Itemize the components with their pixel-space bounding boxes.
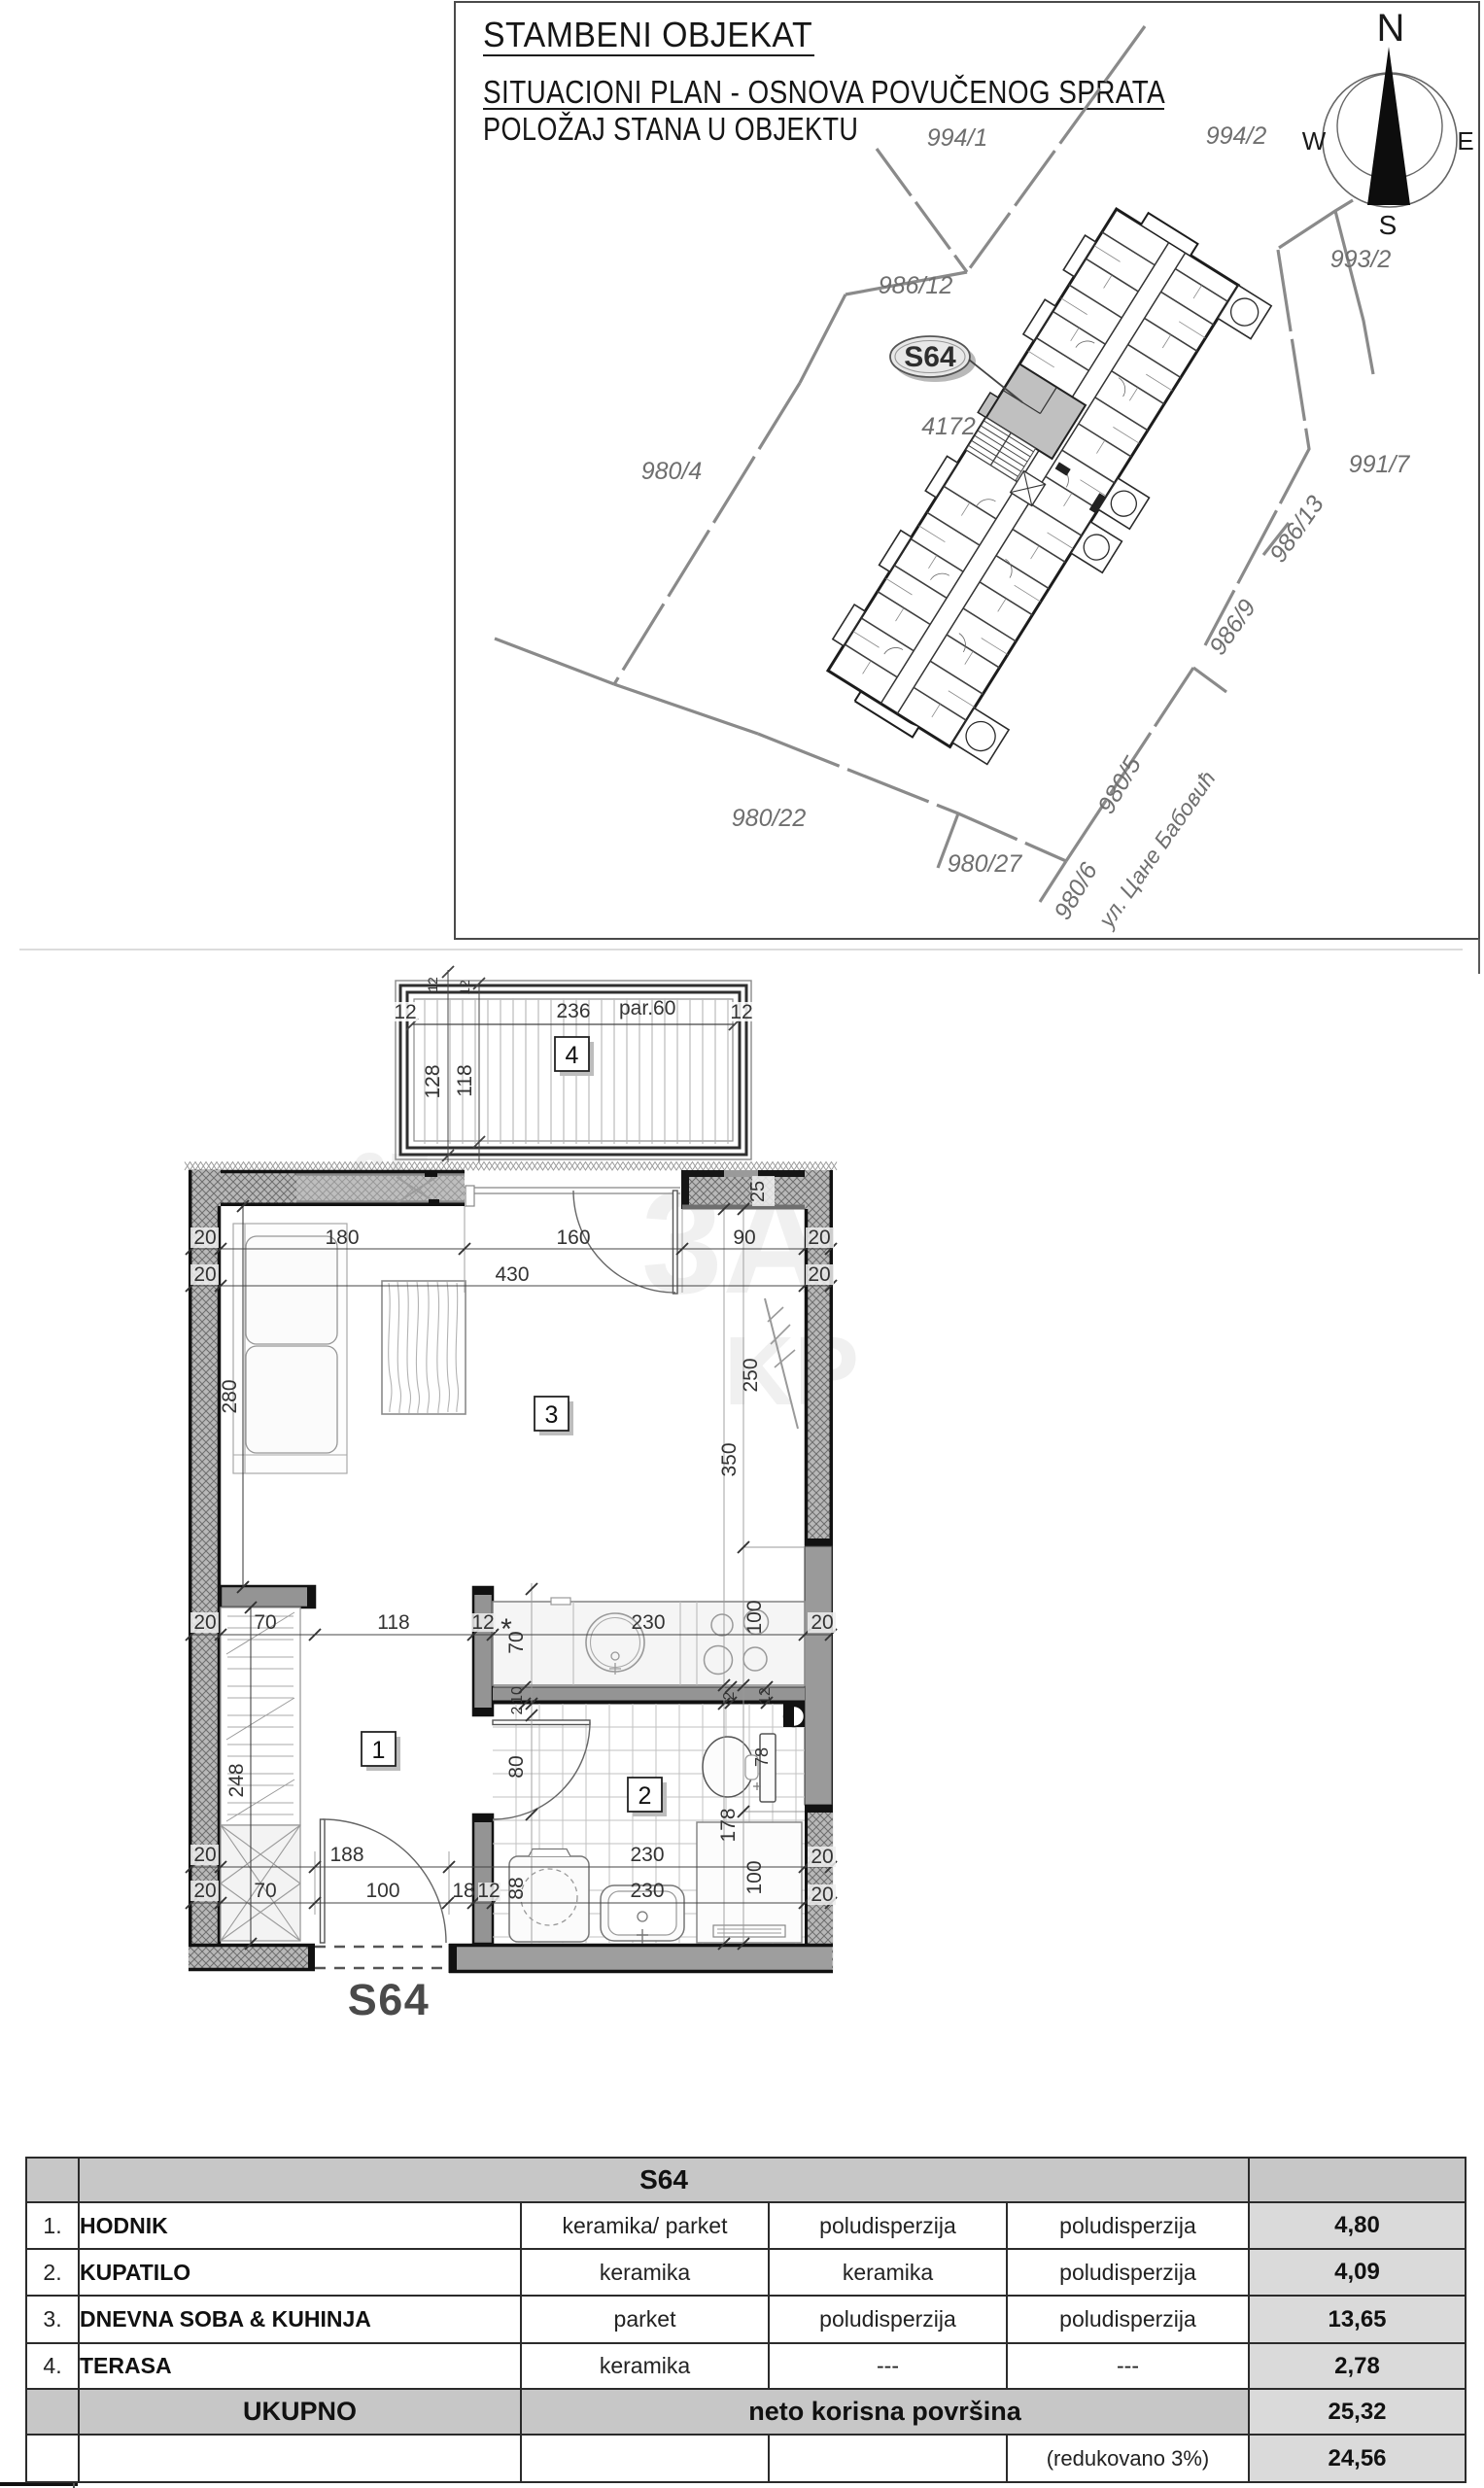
- svg-text:994/1: 994/1: [927, 124, 988, 152]
- svg-text:188: 188: [329, 1844, 363, 1866]
- svg-text:180: 180: [325, 1227, 359, 1249]
- svg-text:250: 250: [740, 1358, 762, 1392]
- svg-text:12: 12: [457, 980, 472, 995]
- svg-text:100: 100: [365, 1880, 399, 1902]
- svg-text:350: 350: [718, 1442, 741, 1476]
- svg-text:20: 20: [808, 1227, 830, 1249]
- svg-text:12: 12: [730, 1001, 752, 1023]
- svg-text:2: 2: [509, 1706, 526, 1714]
- svg-text:280: 280: [219, 1379, 241, 1413]
- svg-text:20: 20: [811, 1883, 833, 1906]
- svg-text:18: 18: [452, 1880, 474, 1902]
- svg-text:12: 12: [394, 1001, 416, 1023]
- svg-text:20: 20: [193, 1227, 216, 1249]
- svg-text:980/27: 980/27: [948, 850, 1023, 878]
- svg-text:986/9: 986/9: [1204, 595, 1261, 660]
- svg-text:248: 248: [225, 1763, 248, 1797]
- svg-text:90: 90: [733, 1227, 755, 1249]
- svg-text:20: 20: [193, 1844, 216, 1866]
- svg-text:12: 12: [425, 977, 440, 992]
- svg-text:12: 12: [477, 1880, 500, 1902]
- svg-text:20: 20: [193, 1263, 216, 1286]
- svg-text:N: N: [1377, 7, 1405, 50]
- svg-text:230: 230: [630, 1844, 664, 1866]
- svg-text:118: 118: [377, 1611, 409, 1634]
- svg-text:20: 20: [808, 1263, 830, 1286]
- svg-text:S: S: [1379, 210, 1398, 240]
- svg-text:430: 430: [495, 1263, 529, 1286]
- svg-text:10: 10: [509, 1686, 526, 1704]
- svg-text:S64: S64: [348, 1975, 431, 2024]
- svg-text:70: 70: [254, 1611, 276, 1634]
- svg-text:25: 25: [747, 1181, 769, 1202]
- svg-text:20: 20: [811, 1611, 833, 1634]
- svg-text:E: E: [1457, 126, 1473, 155]
- svg-text:70: 70: [254, 1880, 276, 1902]
- svg-text:118: 118: [454, 1064, 476, 1096]
- svg-text:S64: S64: [904, 341, 956, 373]
- svg-text:100: 100: [743, 1860, 766, 1894]
- svg-text:88: 88: [505, 1877, 528, 1899]
- svg-text:4: 4: [566, 1042, 579, 1069]
- svg-text:128: 128: [422, 1064, 444, 1098]
- svg-text:20: 20: [193, 1611, 216, 1634]
- svg-text:80: 80: [505, 1755, 528, 1778]
- svg-text:986/13: 986/13: [1264, 491, 1329, 568]
- svg-text:par.60: par.60: [619, 997, 675, 1019]
- svg-text:980/22: 980/22: [732, 805, 807, 832]
- svg-text:230: 230: [630, 1880, 664, 1902]
- svg-text:236: 236: [556, 1000, 590, 1022]
- svg-text:3: 3: [545, 1401, 559, 1429]
- svg-text:12: 12: [757, 1687, 774, 1705]
- svg-text:980/4: 980/4: [641, 458, 703, 485]
- svg-text:986/12: 986/12: [879, 272, 953, 299]
- svg-text:20: 20: [193, 1880, 216, 1902]
- svg-text:1: 1: [372, 1737, 386, 1764]
- svg-text:12: 12: [471, 1611, 494, 1634]
- svg-text:20: 20: [811, 1846, 833, 1868]
- svg-text:78: 78: [752, 1747, 772, 1767]
- svg-text:70: 70: [505, 1631, 528, 1653]
- svg-text:230: 230: [631, 1611, 665, 1634]
- svg-text:994/2: 994/2: [1206, 122, 1267, 150]
- svg-text:991/7: 991/7: [1349, 451, 1411, 478]
- svg-text:2: 2: [638, 1782, 652, 1810]
- svg-text:980/5: 980/5: [1092, 752, 1147, 818]
- svg-text:100: 100: [743, 1600, 766, 1634]
- svg-text:178: 178: [717, 1808, 740, 1842]
- svg-text:4172: 4172: [921, 413, 976, 440]
- svg-text:160: 160: [556, 1227, 590, 1249]
- svg-text:993/2: 993/2: [1330, 246, 1392, 273]
- svg-text:W: W: [1302, 126, 1327, 155]
- svg-text:2: 2: [721, 1691, 738, 1700]
